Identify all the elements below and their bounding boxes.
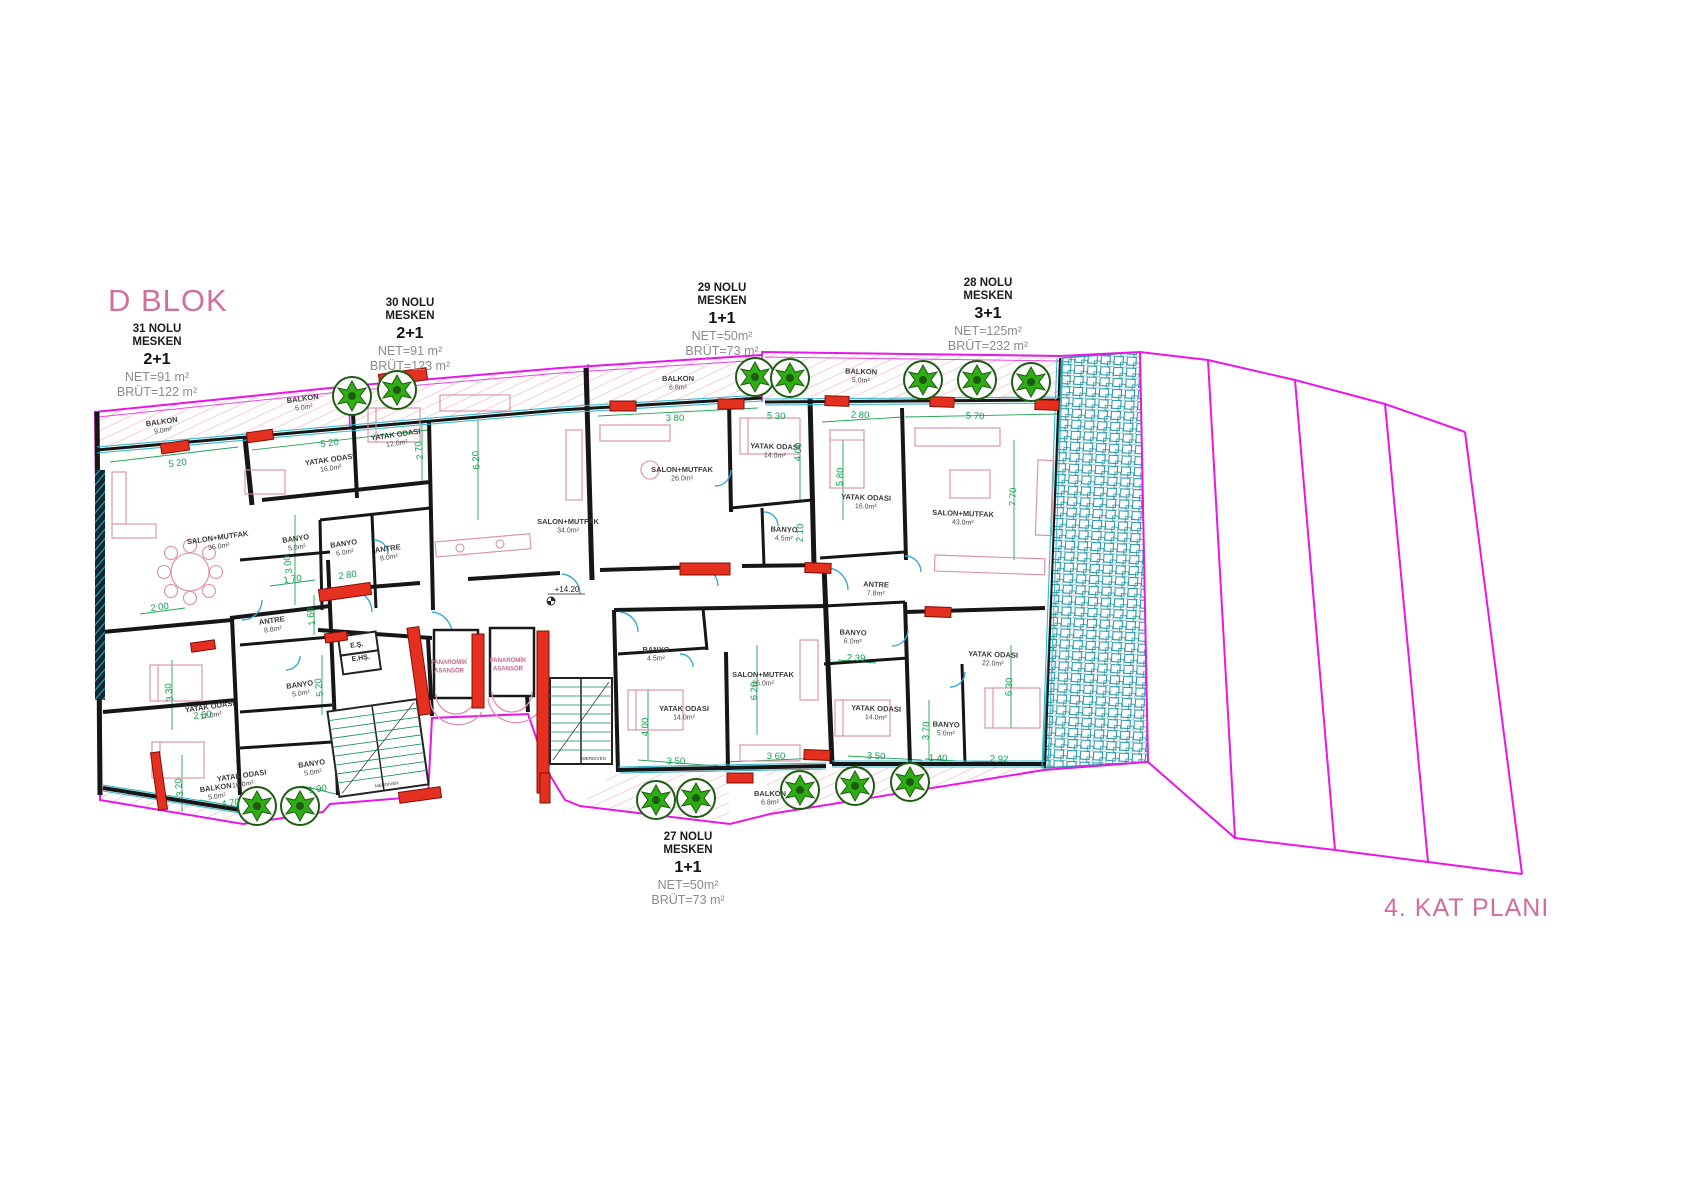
tree-icon [238, 787, 276, 825]
room-label: BANYO6.0m² [839, 628, 867, 646]
dimension-label: 4 00 [793, 442, 805, 461]
block-title: D BLOK [108, 283, 228, 319]
unit-type: 2+1 [117, 351, 197, 369]
unit-brut: BRÜT=73 m² [651, 893, 724, 907]
unit-number: 30 NOLU [370, 297, 450, 310]
shear-wall [540, 773, 550, 803]
room-label: ANTRE8.8m² [258, 614, 286, 635]
dimension-label: 3 20 [173, 777, 186, 797]
dimension-label: 2 70 [413, 440, 426, 460]
unit-label-30: 30 NOLU MESKEN 2+1 NET=91 m² BRÜT=123 m² [370, 297, 450, 373]
dimension-label: 1 90 [308, 783, 328, 796]
tree-icon [904, 361, 942, 399]
shear-wall [472, 634, 484, 708]
dimension-label: 2 39 [847, 653, 866, 665]
dimension-label: 5 20 [320, 437, 340, 450]
unit-mesken: MESKEN [651, 844, 724, 857]
dimension-label: 6 20 [470, 451, 482, 470]
shear-wall [930, 397, 954, 408]
unit-number: 29 NOLU [685, 282, 758, 295]
room-label: YATAK ODASI14.0m² [659, 704, 709, 722]
shear-wall [804, 750, 830, 761]
room-label: BANYO5.0m² [298, 757, 327, 778]
unit-brut: BRÜT=123 m² [370, 359, 450, 373]
shear-wall [805, 563, 831, 574]
dimension-label: 5 20 [168, 457, 188, 470]
dimension-label: 3 00 [282, 554, 295, 574]
room-label: BANYO5.0m² [282, 532, 311, 553]
roof-fan-segments [1140, 352, 1522, 874]
dimension-label: 2 60 [193, 709, 213, 722]
tree-icon [378, 371, 416, 409]
dimension-label: 2 10 [795, 523, 807, 542]
unit-label-28: 28 NOLU MESKEN 3+1 NET=125m² BRÜT=232 m² [948, 277, 1028, 353]
dimension-label: 5 80 [835, 467, 847, 486]
curtain-wall-strip [95, 470, 105, 700]
plan-title: 4. KAT PLANI [1384, 894, 1549, 923]
stair-core [327, 628, 612, 797]
tree-icon [677, 779, 715, 817]
unit-type: 1+1 [685, 310, 758, 328]
dimension-label: 5 20 [313, 677, 326, 697]
unit-label-29: 29 NOLU MESKEN 1+1 NET=50m² BRÜT=73 m² [685, 282, 758, 358]
room-label: ANTRE7.8m² [863, 580, 889, 598]
dimension-label: 2 80 [851, 410, 870, 422]
shear-wall [318, 582, 371, 601]
dimension-label: 2 92 [990, 754, 1009, 766]
unit-brut: BRÜT=73 m² [685, 344, 758, 358]
dimension-label: 2 80 [338, 569, 358, 582]
unit-number: 28 NOLU [948, 277, 1028, 290]
floor-plan-drawing: BALKON9.0m²BALKON5.0m²SALON+MUTFAK36.0m²… [0, 0, 1698, 1200]
room-label: SALON+MUTFAK43.0m² [932, 508, 995, 528]
unit-type: 3+1 [948, 305, 1028, 323]
dimension-label: 1 70 [283, 573, 303, 586]
dimension-label: 5 30 [767, 411, 786, 423]
unit-brut: BRÜT=232 m² [948, 339, 1028, 353]
shear-wall [398, 787, 441, 804]
tree-icon [637, 781, 675, 819]
shear-wall [190, 640, 215, 652]
unit-mesken: MESKEN [685, 295, 758, 308]
tree-icon [1012, 363, 1050, 401]
unit-brut: BRÜT=122 m² [117, 385, 197, 399]
dimension-label: 3 80 [666, 413, 685, 424]
room-label: BANYO5.0m² [932, 720, 960, 738]
room-label: SALON+MUTFAK26.0m² [651, 465, 713, 483]
unit-mesken: MESKEN [117, 336, 197, 349]
tree-icon [958, 361, 996, 399]
tree-icon [836, 767, 874, 805]
floor-plan-page: BALKON9.0m²BALKON5.0m²SALON+MUTFAK36.0m²… [0, 0, 1698, 1200]
room-label: BANYO5.0m² [286, 678, 315, 699]
dimension-label: 3 70 [921, 721, 933, 740]
room-label: BANYO4.5m² [642, 645, 669, 663]
unit-net: NET=91 m² [117, 370, 197, 384]
tree-icon [781, 771, 819, 809]
unit-number: 31 NOLU [117, 323, 197, 336]
unit-label-31: 31 NOLU MESKEN 2+1 NET=91 m² BRÜT=122 m² [117, 323, 197, 399]
dimension-label: 3 30 [163, 682, 176, 702]
room-label: SALON+MUTFAK36.0m² [186, 529, 250, 555]
room-label: YATAK ODASI16.0m² [304, 452, 356, 476]
dimension-label: 5 70 [966, 411, 985, 423]
room-label: ANTRE8.0m² [374, 542, 402, 563]
tree-icon [333, 377, 371, 415]
dimension-label: 3 50 [867, 751, 886, 763]
tree-icon [891, 763, 929, 801]
room-label: SALON+MUTFAK26.0m² [732, 670, 794, 688]
unit-mesken: MESKEN [370, 310, 450, 323]
unit-net: NET=125m² [948, 324, 1028, 338]
shear-wall [825, 396, 849, 407]
tree-icon [771, 359, 809, 397]
unit-net: NET=50m² [685, 329, 758, 343]
unit-label-27: 27 NOLU MESKEN 1+1 NET=50m² BRÜT=73 m² [651, 831, 724, 907]
unit-type: 1+1 [651, 859, 724, 877]
level-marker-label: +14.20 [555, 585, 580, 594]
dimension-label: 6 20 [749, 682, 760, 701]
room-label: YATAK ODASI16.0m² [841, 492, 891, 511]
dimension-label: 7 70 [1008, 487, 1020, 506]
level-marker-icon [547, 594, 585, 605]
unit-type: 2+1 [370, 325, 450, 343]
shear-wall [537, 631, 549, 793]
dimension-label: 1 40 [929, 753, 948, 765]
shear-wall [610, 401, 636, 411]
room-label: YATAK ODASI14.0m² [851, 703, 901, 722]
dimension-label: 6 30 [1004, 677, 1016, 696]
shear-wall [1035, 400, 1059, 411]
tree-icon [736, 358, 774, 396]
dimension-label: 3 50 [667, 756, 686, 767]
unit-net: NET=91 m² [370, 344, 450, 358]
unit-net: NET=50m² [651, 878, 724, 892]
dimension-label: 2 00 [150, 601, 170, 614]
shear-wall [680, 563, 730, 575]
dimension-label: 4 00 [640, 718, 651, 737]
shear-wall [925, 607, 951, 618]
dimension-label: 3 60 [767, 751, 786, 762]
shear-wall [718, 399, 744, 409]
room-label: BANYO6.0m² [330, 537, 359, 558]
core-label: MERDİVEN [582, 755, 606, 761]
shear-wall [727, 773, 753, 783]
unit-number: 27 NOLU [651, 831, 724, 844]
unit-mesken: MESKEN [948, 290, 1028, 303]
